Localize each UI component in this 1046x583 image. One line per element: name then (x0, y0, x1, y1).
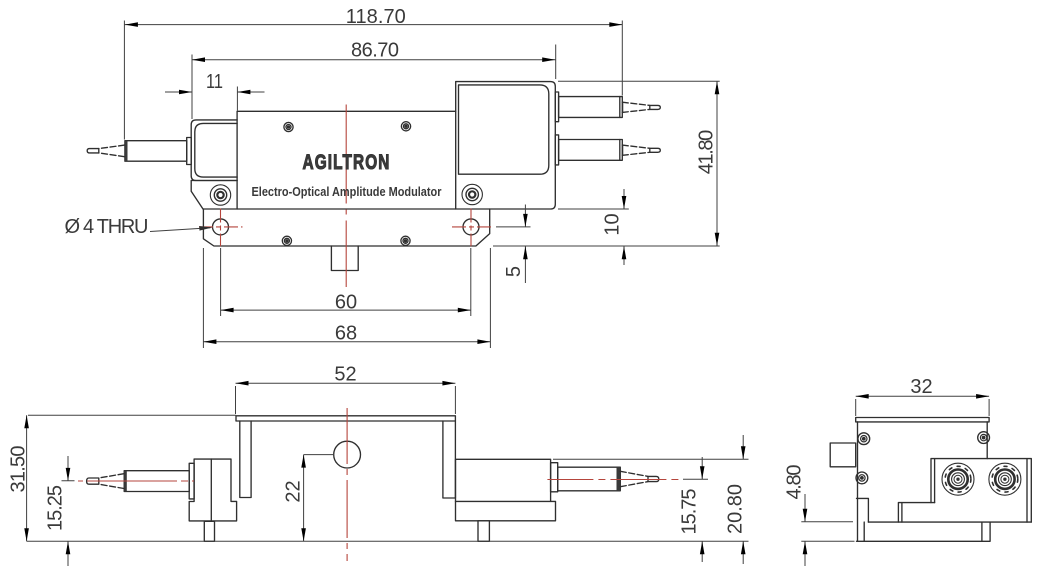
svg-text:41.80: 41.80 (696, 130, 718, 175)
svg-text:31.50: 31.50 (8, 446, 30, 493)
svg-text:52: 52 (334, 364, 356, 386)
svg-text:60: 60 (335, 292, 357, 314)
svg-text:5: 5 (503, 266, 525, 277)
svg-text:118.70: 118.70 (346, 6, 406, 28)
svg-text:22: 22 (283, 480, 305, 502)
svg-text:Electro-Optical Amplitude Modu: Electro-Optical Amplitude Modulator (252, 185, 442, 199)
svg-text:Ø 4 THRU: Ø 4 THRU (65, 216, 149, 238)
svg-text:11: 11 (206, 71, 223, 93)
svg-text:86.70: 86.70 (351, 40, 399, 62)
svg-text:10: 10 (602, 213, 624, 235)
svg-text:AGILTRON: AGILTRON (303, 151, 391, 174)
svg-text:20.80: 20.80 (725, 484, 747, 534)
svg-text:32: 32 (910, 376, 932, 398)
svg-text:68: 68 (335, 323, 357, 345)
svg-text:15.75: 15.75 (679, 489, 701, 535)
svg-text:15.25: 15.25 (45, 485, 67, 531)
svg-text:4.80: 4.80 (784, 465, 806, 500)
